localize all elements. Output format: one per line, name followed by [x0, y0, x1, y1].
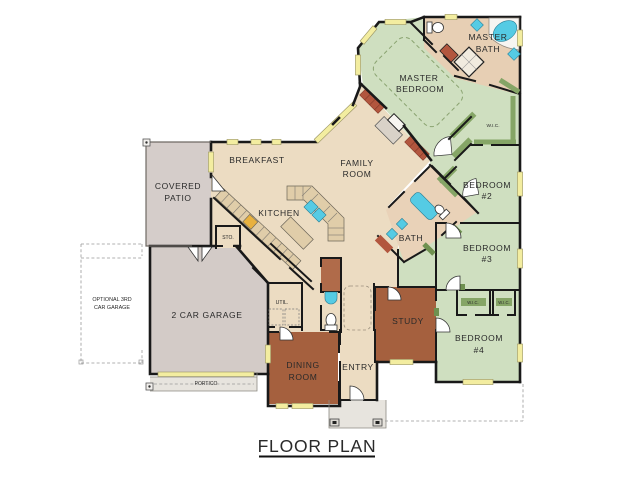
- svg-text:BEDROOM: BEDROOM: [455, 333, 503, 343]
- svg-text:#4: #4: [474, 345, 485, 355]
- svg-text:#3: #3: [482, 254, 493, 264]
- svg-text:COVERED: COVERED: [155, 181, 201, 191]
- svg-text:BEDROOM: BEDROOM: [463, 243, 511, 253]
- svg-text:STO.: STO.: [222, 235, 234, 241]
- svg-text:UTIL.: UTIL.: [276, 300, 289, 306]
- svg-text:#2: #2: [482, 191, 493, 201]
- svg-text:ROOM: ROOM: [343, 169, 372, 179]
- svg-text:OPTIONAL 3RD: OPTIONAL 3RD: [92, 297, 131, 303]
- svg-text:W.I.C.: W.I.C.: [486, 123, 499, 129]
- svg-text:FLOOR PLAN: FLOOR PLAN: [258, 436, 377, 456]
- svg-text:W.I.C.: W.I.C.: [498, 300, 509, 305]
- svg-text:2 CAR GARAGE: 2 CAR GARAGE: [172, 310, 243, 320]
- svg-text:BEDROOM: BEDROOM: [396, 84, 444, 94]
- svg-text:MASTER: MASTER: [399, 73, 438, 83]
- svg-text:BREAKFAST: BREAKFAST: [229, 155, 284, 165]
- svg-text:BEDROOM: BEDROOM: [463, 180, 511, 190]
- svg-text:MASTER: MASTER: [468, 32, 507, 42]
- svg-text:BATH: BATH: [399, 233, 423, 243]
- svg-text:W.I.C.: W.I.C.: [467, 300, 478, 305]
- svg-text:BATH: BATH: [476, 44, 500, 54]
- svg-text:FAMILY: FAMILY: [340, 158, 373, 168]
- svg-text:ENTRY: ENTRY: [342, 362, 374, 372]
- svg-text:PORTICO: PORTICO: [195, 381, 218, 387]
- svg-text:PATIO: PATIO: [164, 193, 191, 203]
- svg-text:STUDY: STUDY: [392, 316, 424, 326]
- svg-text:CAR GARAGE: CAR GARAGE: [94, 305, 130, 311]
- svg-text:DINING: DINING: [286, 360, 319, 370]
- svg-text:ROOM: ROOM: [289, 372, 318, 382]
- svg-text:KITCHEN: KITCHEN: [258, 208, 300, 218]
